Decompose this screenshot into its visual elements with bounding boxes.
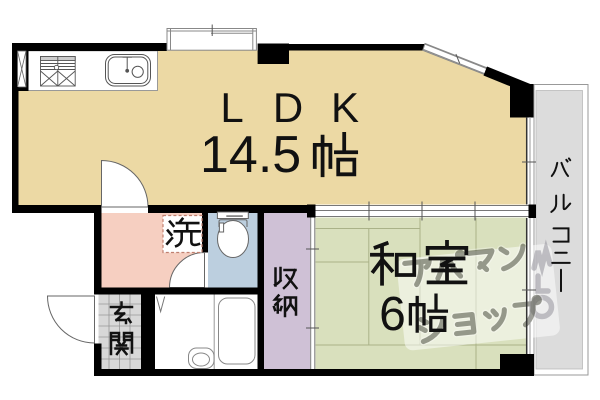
svg-text:14.5: 14.5 xyxy=(200,126,301,184)
svg-text:L: L xyxy=(220,84,243,131)
svg-text:6: 6 xyxy=(379,288,406,341)
svg-text:D: D xyxy=(273,84,303,131)
svg-text:K: K xyxy=(331,84,359,131)
